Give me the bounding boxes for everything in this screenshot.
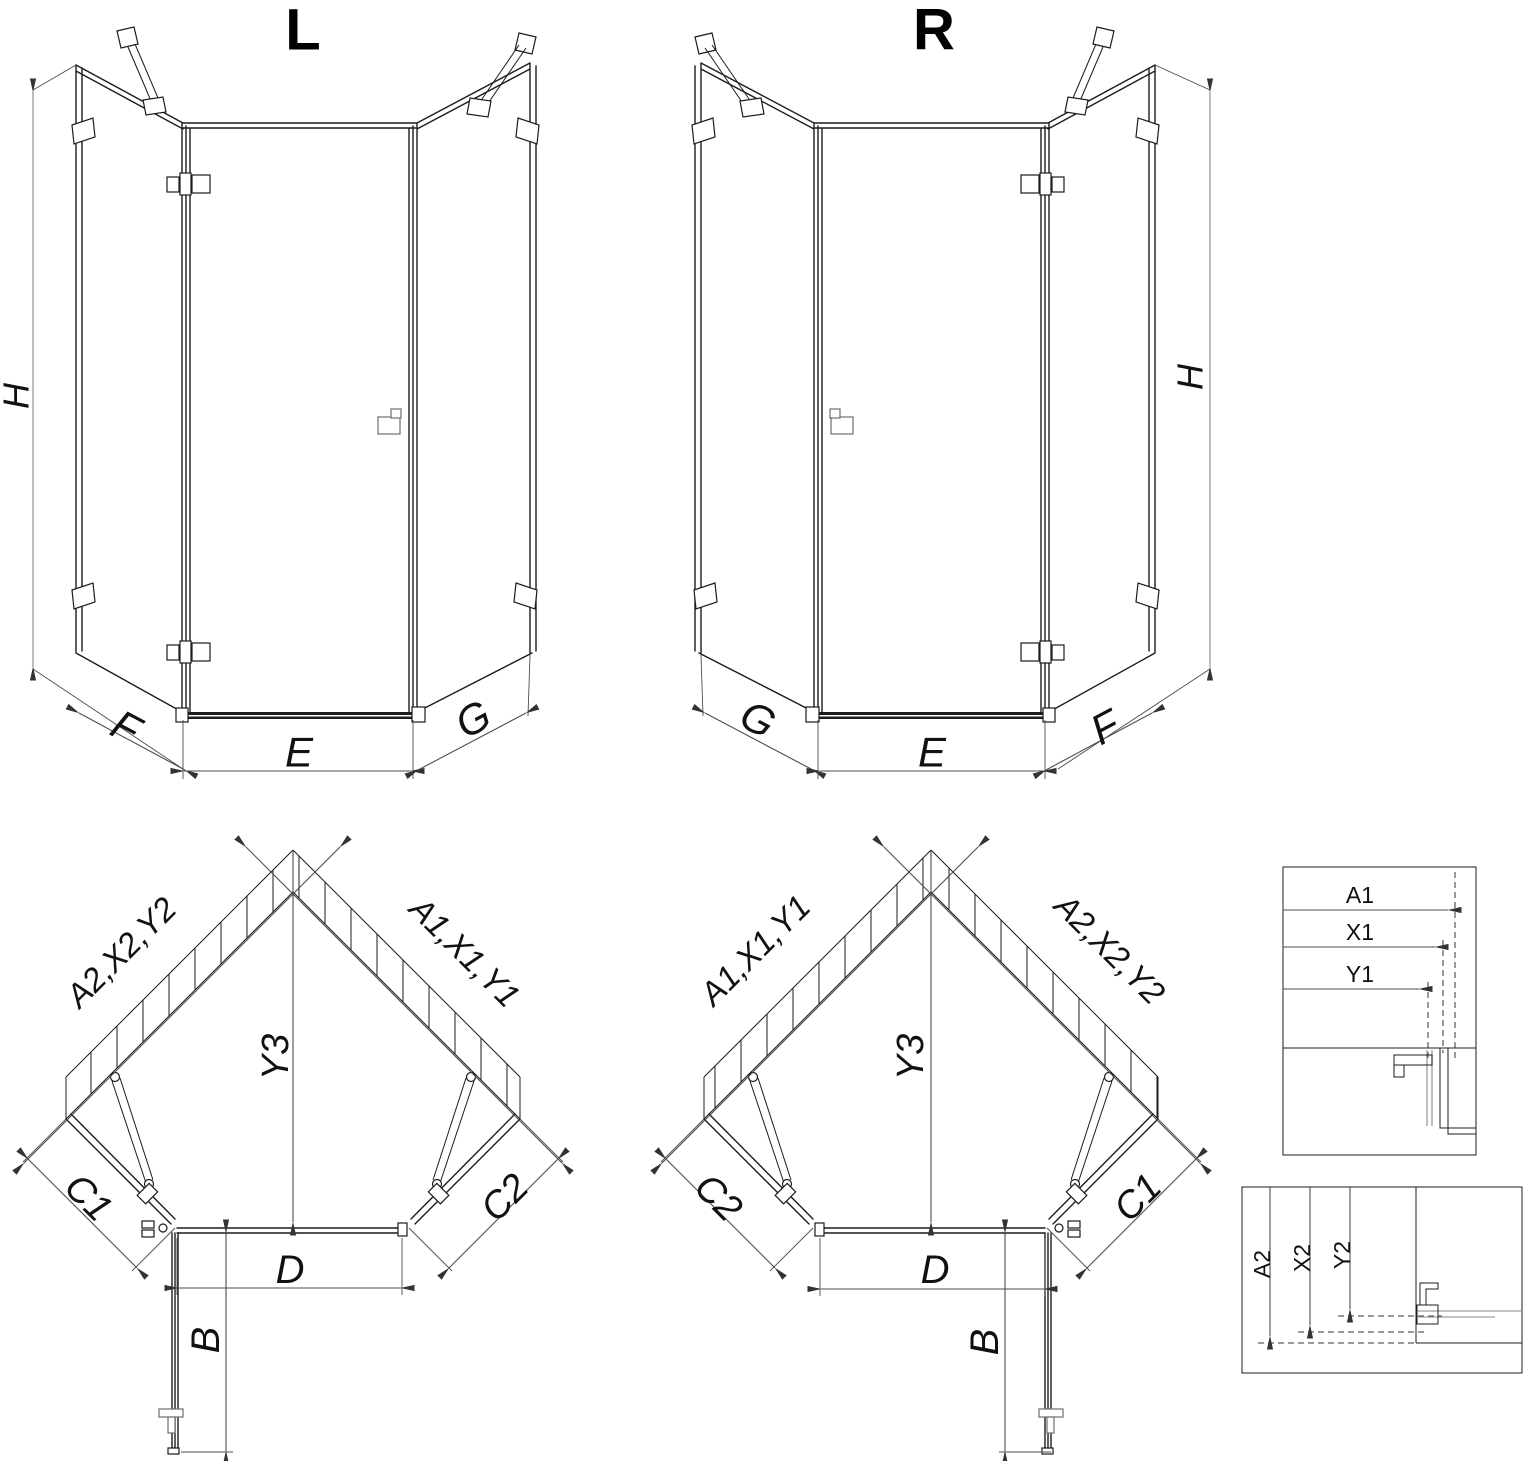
door-closed-plan: [817, 1228, 1045, 1233]
front-dim-label: E: [285, 729, 314, 776]
panel-left-dim-label: C2: [686, 1166, 750, 1230]
dimension-door-width: D: [177, 1238, 402, 1295]
dimension-door-open: B: [963, 1233, 1051, 1452]
stabilizer-arm-left: [749, 1073, 796, 1204]
door-end-cap: [398, 1223, 407, 1236]
door-end-cap: [815, 1223, 824, 1236]
bar-clamp: [740, 98, 764, 117]
dimension-side-right: G: [418, 655, 530, 770]
x1-dim-label: X1: [1346, 919, 1374, 945]
side-left-dim-label: G: [733, 691, 784, 748]
dimension-front: E: [818, 720, 1045, 779]
a2-dim-label: A2: [1249, 1250, 1275, 1278]
wall-bracket-icon: [514, 583, 537, 609]
technical-drawing-sheet: L: [0, 0, 1530, 1461]
sill-end-cap-left: [176, 708, 188, 722]
wall-mount-plate: [695, 33, 716, 54]
dimension-front: E: [183, 720, 413, 779]
x2-dim-label: X2: [1289, 1244, 1315, 1272]
threshold-sill-lower: [182, 717, 417, 720]
sill-end-cap-left: [806, 707, 819, 722]
threshold-sill: [182, 712, 417, 715]
door-pivot-hinge: [142, 1221, 167, 1237]
y1-dim-label: Y1: [1346, 961, 1374, 987]
dimension-height: H: [0, 65, 183, 769]
view-3d-right-variant: R: [692, 0, 1211, 779]
door-hinge-top: [1021, 173, 1064, 195]
dimension-x2: X2: [1289, 1187, 1315, 1325]
dimension-x1: X1: [1283, 919, 1435, 947]
door-width-dim-label: D: [921, 1248, 950, 1292]
wall-bracket-icon: [694, 583, 717, 609]
shower-enclosure-diagram: L: [0, 0, 1530, 1461]
support-bar-top-right: [1065, 27, 1114, 115]
depth-dim-label: Y3: [255, 1034, 297, 1080]
sill-end-cap-right: [1043, 708, 1055, 722]
variant-title-left: L: [285, 0, 320, 63]
bar-clamp: [143, 97, 166, 115]
door-bottom-cap: [1042, 1448, 1053, 1454]
door-open-dim-label: B: [184, 1327, 228, 1354]
dimension-door-width: D: [820, 1238, 1045, 1296]
height-dim-label: H: [0, 382, 37, 409]
detail-section-floor-offsets: A2 X2 Y2: [1242, 1187, 1522, 1373]
door-handle-icon: [1039, 1409, 1063, 1433]
dimension-side-right: F: [1046, 699, 1152, 770]
wall-mount-plate: [515, 33, 536, 54]
plan-view-left-variant: A2,X2,Y2 A1,X1,Y1 Y3 C1 C2 D: [23, 847, 563, 1454]
dimension-y1: Y1: [1283, 961, 1419, 989]
side-left-dim-label: F: [104, 700, 151, 755]
reference-lines: [1428, 872, 1455, 1058]
door-handle-icon: [159, 1409, 183, 1433]
sill-end-cap-right: [412, 707, 425, 722]
door-hinge-bottom: [167, 641, 210, 663]
plan-view-right-variant: A1,X1,Y1 A2,X2,Y2 Y3 C2 C1 D B: [661, 847, 1201, 1454]
support-bar-top-right: [467, 33, 536, 117]
dimension-a1: A1: [1283, 882, 1448, 910]
stabilizer-arm-right: [1066, 1073, 1113, 1204]
side-right-dim-label: G: [448, 691, 499, 748]
stabilizer-arm-right: [428, 1073, 475, 1204]
support-bar-top-left: [117, 27, 166, 115]
glass-panels-left-variant: [76, 63, 536, 712]
glass-panels-right-variant: [695, 63, 1155, 712]
detail-section-wall-offsets: A1 X1 Y1: [1283, 867, 1476, 1155]
floor-profile-section: [1417, 1283, 1522, 1324]
view-3d-left-variant: L: [0, 0, 539, 779]
door-open-dim-label: B: [963, 1329, 1007, 1356]
panel-right-dim-label: C1: [1106, 1166, 1170, 1230]
door-hinge-top: [167, 173, 210, 195]
door-handle-icon: [378, 409, 401, 434]
door-bottom-cap: [168, 1448, 179, 1454]
door-handle-icon: [830, 409, 853, 434]
dimension-a2: A2: [1249, 1187, 1275, 1336]
panel-left-dim-label: C1: [56, 1166, 120, 1230]
dimension-height: H: [1058, 65, 1211, 769]
y2-dim-label: Y2: [1329, 1241, 1355, 1269]
height-dim-label: H: [1170, 363, 1211, 390]
dimension-door-open: B: [181, 1233, 233, 1452]
bar-clamp: [467, 98, 491, 117]
door-closed-plan: [177, 1228, 402, 1233]
threshold-sill: [814, 712, 1049, 715]
bar-clamp: [1065, 97, 1088, 115]
dimension-y2: Y2: [1329, 1187, 1355, 1309]
variant-title-right: R: [913, 0, 955, 63]
support-bar-top-left: [695, 33, 764, 117]
door-width-dim-label: D: [276, 1248, 305, 1292]
a1-dim-label: A1: [1346, 882, 1374, 908]
door-hinge-bottom: [1021, 641, 1064, 663]
reference-lines: [1258, 1316, 1442, 1343]
stabilizer-arm-left: [111, 1073, 158, 1204]
door-pivot-hinge: [1055, 1221, 1080, 1237]
front-dim-label: E: [918, 729, 947, 776]
dimension-side-left: G: [701, 655, 813, 770]
detail-frame: [1242, 1187, 1522, 1373]
wall-profile-section: [1394, 1048, 1476, 1134]
threshold-sill-lower: [814, 717, 1049, 720]
depth-dim-label: Y3: [890, 1034, 932, 1080]
panel-right-dim-label: C2: [473, 1166, 537, 1230]
